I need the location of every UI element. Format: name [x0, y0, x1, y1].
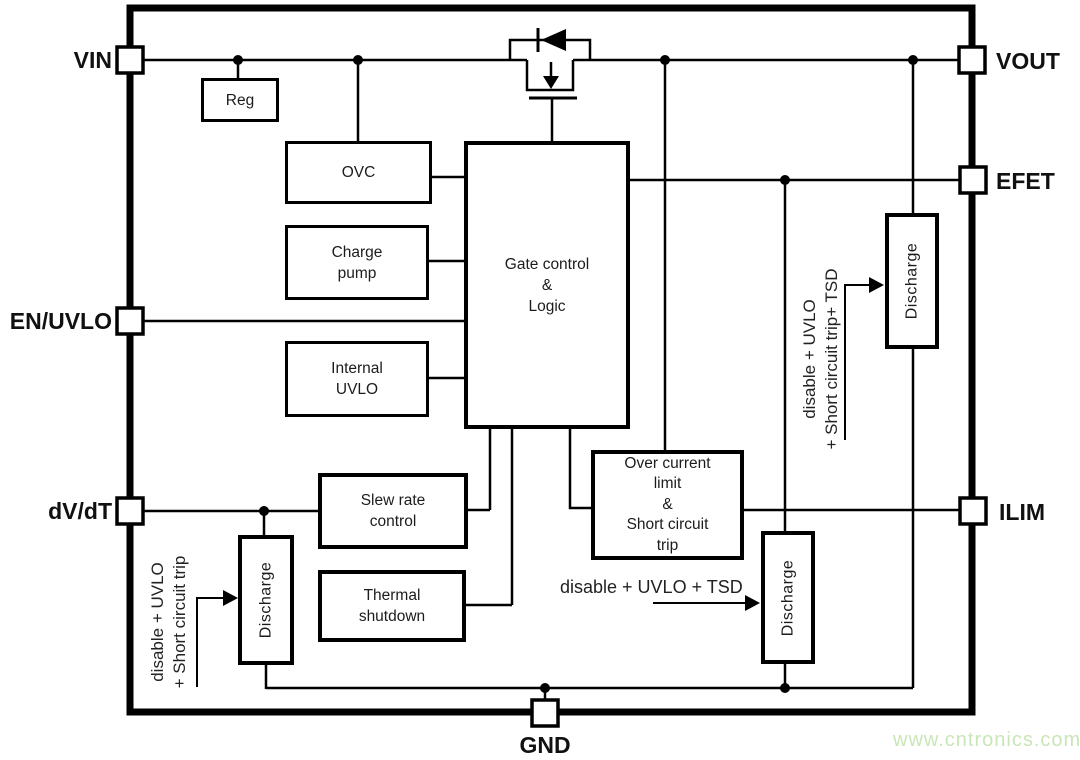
pin-ilim — [960, 498, 986, 524]
pin-gnd — [532, 700, 558, 726]
block-discharge-bottom-left-label: Discharge — [257, 562, 275, 639]
block-ovc: OVC — [285, 141, 432, 204]
pin-label-gnd: GND — [505, 732, 585, 759]
pin-label-en-uvlo: EN/UVLO — [4, 308, 112, 335]
block-thermal-shutdown: Thermal shutdown — [318, 570, 466, 642]
pin-vin — [117, 47, 143, 73]
pin-dvdt — [117, 498, 143, 524]
block-over-current: Over current limit & Short circuit trip — [591, 450, 744, 560]
block-discharge-top-right: Discharge — [885, 213, 939, 349]
block-thermal-shutdown-label: Thermal shutdown — [359, 585, 425, 627]
diode-triangle — [541, 29, 566, 51]
block-diagram: Reg OVC Charge pump Internal UVLO Gate c… — [0, 0, 1080, 760]
pin-label-vout: VOUT — [996, 48, 1060, 75]
block-slew-rate: Slew rate control — [318, 473, 468, 549]
annotation-disable-bottom: disable + UVLO + TSD — [560, 576, 743, 598]
block-gate-control-label: Gate control & Logic — [505, 254, 589, 317]
block-internal-uvlo: Internal UVLO — [285, 341, 429, 417]
pin-label-dvdt: dV/dT — [30, 498, 112, 525]
block-ovc-label: OVC — [342, 162, 376, 183]
annotation-disable-right: disable + UVLO + Short circuit trip+ TSD — [799, 268, 843, 449]
pin-label-efet: EFET — [996, 168, 1055, 195]
pin-en-uvlo — [117, 308, 143, 334]
pin-vout — [959, 47, 985, 73]
arrowhead-right — [869, 277, 884, 293]
mosfet-arrow-head — [543, 76, 559, 89]
watermark-text: www.cntronics.com — [893, 729, 1080, 752]
arrow-right-annotation — [845, 285, 870, 440]
block-reg-label: Reg — [226, 90, 254, 111]
pin-label-ilim: ILIM — [999, 499, 1045, 526]
block-reg: Reg — [201, 78, 279, 122]
block-charge-pump: Charge pump — [285, 225, 429, 300]
pin-efet — [960, 167, 986, 193]
wire-slewrate-gate — [468, 429, 490, 510]
block-internal-uvlo-label: Internal UVLO — [331, 358, 383, 400]
block-discharge-bottom-right: Discharge — [761, 531, 815, 664]
arrowhead-left — [223, 590, 238, 606]
arrow-left-annotation — [197, 598, 224, 687]
block-gate-control: Gate control & Logic — [464, 141, 630, 429]
block-over-current-label: Over current limit & Short circuit trip — [624, 454, 710, 557]
annotation-disable-left: disable + UVLO + Short circuit trip — [147, 556, 191, 689]
block-discharge-bottom-left: Discharge — [238, 535, 294, 665]
block-discharge-bottom-right-label: Discharge — [779, 559, 797, 636]
pin-label-vin: VIN — [40, 47, 112, 74]
wire-gate-ocl — [570, 429, 591, 508]
block-discharge-top-right-label: Discharge — [903, 243, 921, 320]
arrowhead-bottom — [745, 595, 760, 611]
block-slew-rate-label: Slew rate control — [361, 490, 426, 532]
block-charge-pump-label: Charge pump — [332, 242, 383, 284]
